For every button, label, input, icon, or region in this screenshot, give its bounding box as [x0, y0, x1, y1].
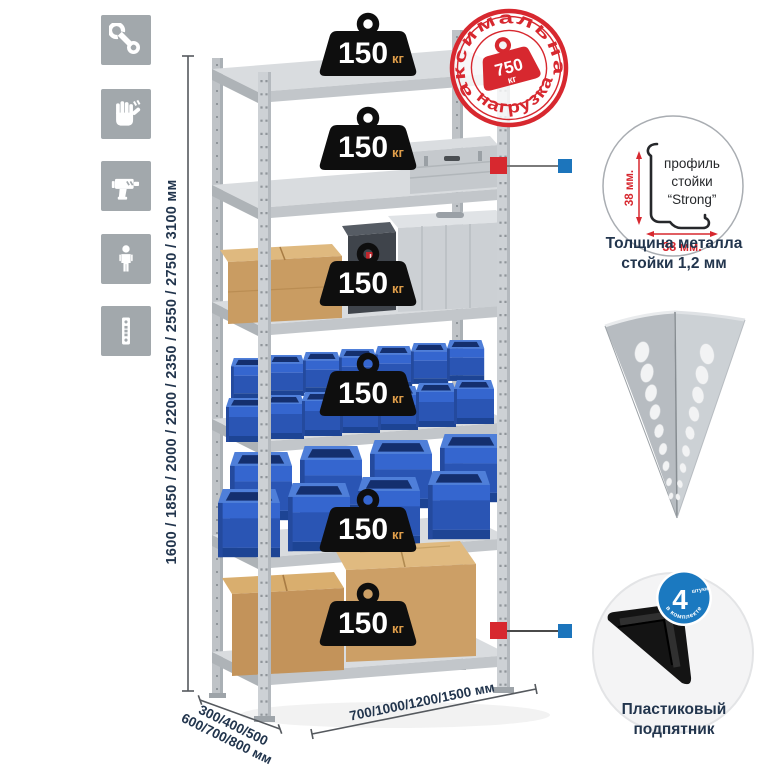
blue-callout-square — [558, 624, 572, 638]
max-load-stamp: максимальная нагрузка 750 кг — [443, 2, 575, 134]
shelf-load-badge-2: 150 кг — [320, 110, 417, 170]
profile-caption: Толщина металла стойки 1,2 мм — [588, 234, 760, 274]
badge-value: 150 — [338, 131, 388, 164]
shelf-load-badges: 150 кг 150 кг 150 кг 150 кг — [320, 16, 417, 646]
badge-value: 150 — [338, 607, 388, 640]
height-dimension-line — [182, 56, 194, 691]
blue-callout-square — [558, 159, 572, 173]
profile-callout-connector — [490, 157, 572, 174]
quantity-badge-value: 4 — [672, 584, 688, 615]
badge-unit: кг — [392, 621, 405, 636]
foot-callout-connector — [490, 622, 572, 639]
corner-post-image — [595, 300, 755, 535]
foot-caption-line1: Пластиковый — [622, 701, 727, 718]
badge-value: 150 — [338, 267, 388, 300]
profile-caption-line1: Толщина металла — [606, 235, 743, 252]
profile-vertical-dim: 38 мм. — [624, 170, 636, 206]
badge-unit: кг — [392, 51, 405, 66]
profile-label-line3: “Strong” — [668, 192, 717, 207]
red-callout-square — [490, 622, 507, 639]
badge-value: 150 — [338, 377, 388, 410]
badge-unit: кг — [392, 145, 405, 160]
badge-unit: кг — [392, 527, 405, 542]
quantity-badge: 4 штуки в комплекте — [656, 570, 712, 626]
badge-value: 150 — [338, 513, 388, 546]
foot-caption-line2: подпятник — [633, 721, 714, 738]
shelf-load-badge-1: 150 кг — [320, 16, 417, 76]
profile-label-line1: профиль — [664, 156, 720, 171]
badge-unit: кг — [392, 391, 405, 406]
profile-label-line2: стойки — [671, 174, 712, 189]
badge-value: 150 — [338, 37, 388, 70]
red-callout-square — [490, 157, 507, 174]
profile-caption-line2: стойки 1,2 мм — [621, 255, 726, 272]
aluminium-case — [402, 136, 498, 194]
profile-label: профиль стойки “Strong” — [664, 156, 720, 207]
shelving-infographic: 1600 / 1850 / 2000 / 2200 / 2350 / 2550 … — [0, 0, 765, 765]
badge-unit: кг — [392, 281, 405, 296]
foot-caption: Пластиковый подпятник — [588, 700, 760, 740]
